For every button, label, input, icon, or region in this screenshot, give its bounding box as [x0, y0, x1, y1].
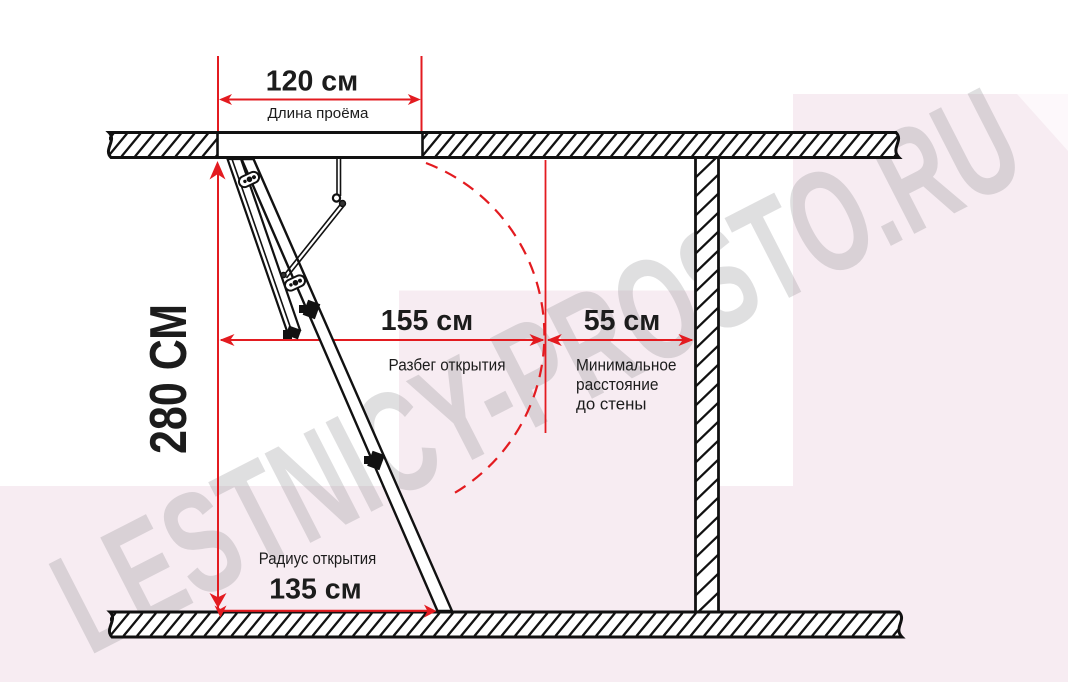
svg-text:расстояние: расстояние: [576, 376, 659, 394]
svg-text:55 см: 55 см: [584, 305, 661, 337]
svg-text:120 см: 120 см: [266, 66, 358, 98]
svg-text:Радиус открытия: Радиус открытия: [259, 550, 377, 568]
svg-text:до стены: до стены: [576, 396, 647, 414]
svg-text:135 см: 135 см: [269, 574, 361, 606]
svg-text:Длина проёма: Длина проёма: [268, 106, 370, 122]
svg-text:Разбег открытия: Разбег открытия: [389, 357, 506, 375]
svg-text:155 см: 155 см: [381, 305, 473, 337]
svg-text:Минимальное: Минимальное: [576, 357, 677, 375]
svg-text:280 СМ: 280 СМ: [140, 304, 198, 454]
